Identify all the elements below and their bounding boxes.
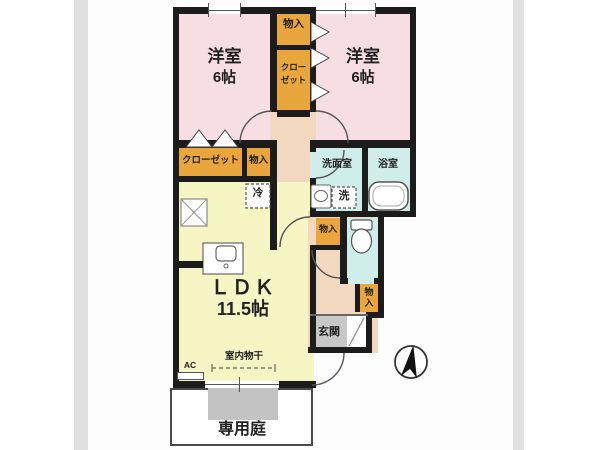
indoor-laundry-label: 室内物干 (210, 352, 278, 362)
wall-entrance-bottom (308, 347, 372, 353)
door-gap-toilet (348, 278, 374, 284)
floorplan-screenshot: 洋室 6帖 洋室 6帖 物入 クロー ゼット クローゼット 物入 洗面室 浴室 … (0, 0, 600, 450)
bedroom1-size-label: 6帖 (179, 70, 270, 87)
storage-hall-label-line2: 入 (360, 299, 378, 309)
window-ldk-garden-door (205, 381, 279, 388)
entrance-step-line (310, 314, 368, 316)
wall-closetrow-bottom (173, 176, 277, 182)
terrace-slab (208, 388, 278, 420)
private-garden-label: 専用庭 (198, 421, 286, 439)
washroom-label: 洗面室 (312, 159, 362, 170)
wall-wash-bath-divider (362, 148, 368, 211)
entrance-porch (347, 316, 366, 347)
wall-storage-toilet-bottom (310, 245, 347, 250)
wall-bedroom2-bottom (310, 140, 416, 148)
toilet-room-floor (347, 218, 378, 278)
closet-top-label-line1: クロー (277, 63, 310, 72)
wall-bedroom1-bottom (173, 140, 277, 148)
closet-mid-label: クローゼット (179, 156, 242, 166)
wall-storage-top-divider (277, 45, 310, 50)
storage-mid-label: 物入 (245, 156, 272, 166)
storage-toilet-label: 物入 (314, 225, 342, 235)
bedroom1-name-label: 洋室 (179, 48, 270, 67)
window-ldk-low (177, 372, 204, 380)
fridge-label: 冷 (246, 188, 270, 200)
closet-top-label-line2: ゼット (277, 76, 310, 85)
bedroom2-size-label: 6帖 (316, 70, 410, 87)
ldk-size-label: 11.5帖 (184, 300, 302, 320)
door-gap-bedroom1 (270, 112, 277, 140)
bedroom2-name-label: 洋室 (316, 48, 410, 67)
entrance-label: 玄関 (311, 326, 347, 338)
window-bedroom1 (209, 7, 241, 14)
wall-right-mid (378, 211, 384, 318)
storage-hall-label-line1: 物 (360, 288, 378, 298)
wall-right-upper (410, 7, 416, 217)
bathroom-label: 浴室 (366, 159, 410, 170)
storage-top-label: 物入 (277, 19, 310, 31)
washer-label: 洗 (332, 190, 356, 202)
ldk-name-label: ＬＤＫ (184, 277, 302, 299)
door-gap-bedroom2 (310, 112, 316, 140)
window-bedroom2 (316, 7, 376, 14)
ac-label: AC (179, 361, 201, 370)
wall-bath-bottom (310, 211, 416, 217)
